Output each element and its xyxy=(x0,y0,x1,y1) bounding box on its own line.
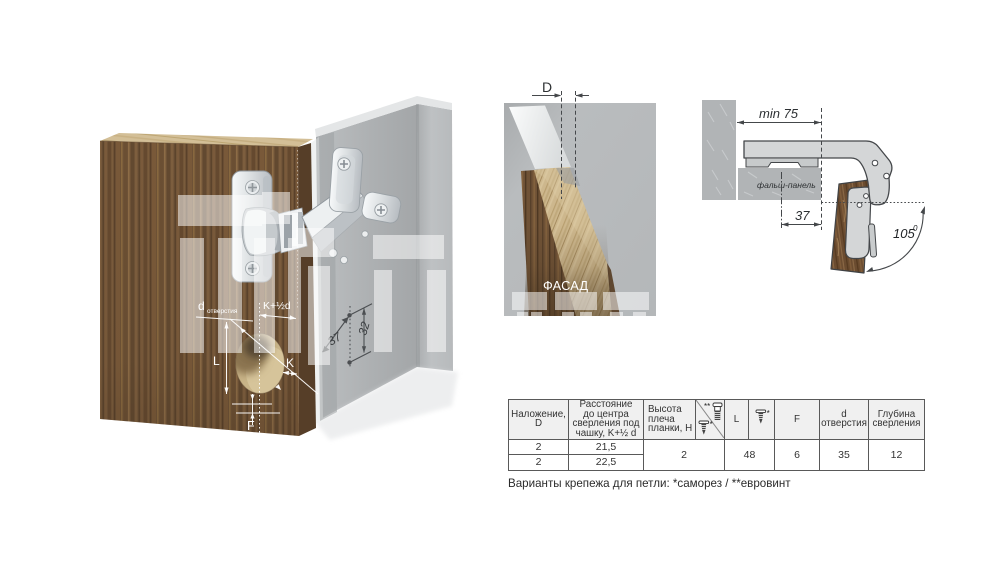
svg-text:K+½d: K+½d xyxy=(263,300,291,312)
svg-text:K: K xyxy=(286,356,294,370)
svg-text:37: 37 xyxy=(795,208,810,223)
svg-text:L: L xyxy=(213,354,220,368)
svg-text:F: F xyxy=(247,419,255,433)
svg-text:D: D xyxy=(542,79,552,95)
svg-text:ФАСАД: ФАСАД xyxy=(543,278,588,293)
svg-text:*: * xyxy=(710,420,713,429)
svg-text:фальш-панель: фальш-панель xyxy=(757,180,816,190)
svg-text:*: * xyxy=(766,409,769,418)
svg-text:0: 0 xyxy=(913,224,918,233)
svg-text:min 75: min 75 xyxy=(759,106,799,121)
svg-text:отверстия: отверстия xyxy=(207,308,238,315)
svg-text:d: d xyxy=(198,299,205,313)
svg-text:**: ** xyxy=(704,402,710,411)
